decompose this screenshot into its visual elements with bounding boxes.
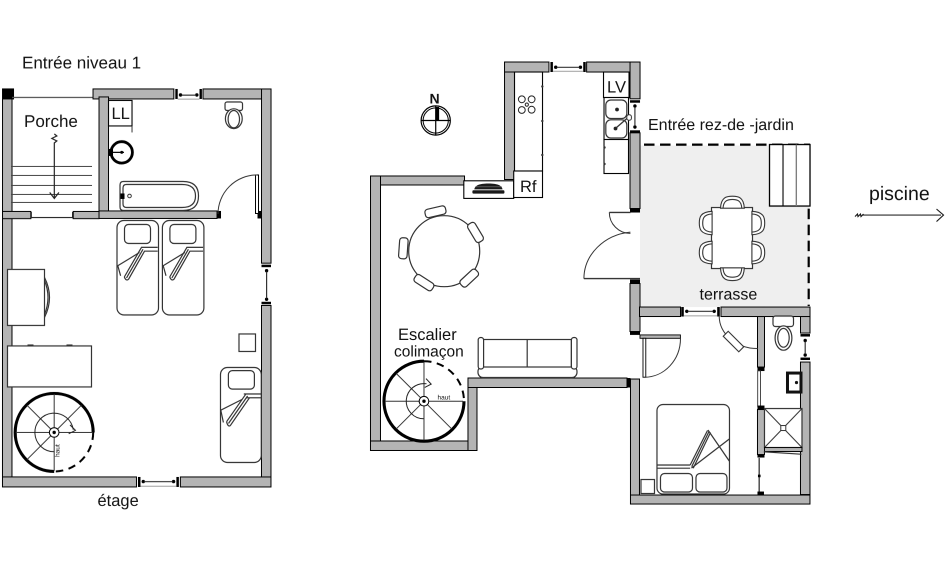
svg-text:terrasse: terrasse <box>699 287 757 304</box>
svg-text:piscine: piscine <box>869 183 930 205</box>
svg-text:colimaçon: colimaçon <box>394 343 464 360</box>
svg-text:Entrée rez-de -jardin: Entrée rez-de -jardin <box>648 117 794 134</box>
svg-text:haut: haut <box>437 394 450 401</box>
svg-text:N: N <box>430 90 440 106</box>
svg-text:Entrée niveau 1: Entrée niveau 1 <box>22 53 141 72</box>
svg-text:haut: haut <box>54 444 61 457</box>
svg-text:LV: LV <box>607 79 626 97</box>
svg-text:étage: étage <box>97 492 138 510</box>
svg-text:Escalier: Escalier <box>398 326 457 344</box>
svg-text:Porche: Porche <box>24 112 78 131</box>
svg-text:LL: LL <box>112 105 130 123</box>
svg-text:Rf: Rf <box>520 178 537 196</box>
